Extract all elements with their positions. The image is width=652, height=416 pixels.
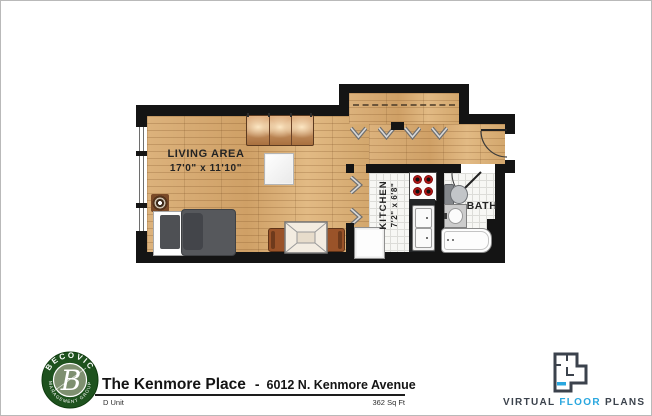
logo-monogram: B — [60, 364, 82, 397]
kitchen-label: KITCHEN 7'2" x 6'8" — [379, 170, 401, 240]
hanger-icon — [350, 126, 367, 140]
sink-basin — [415, 208, 432, 228]
sink-basin — [415, 228, 432, 248]
vfp-word-virtual: VIRTUAL — [503, 397, 555, 408]
burner-icon — [413, 187, 422, 196]
title-underline — [95, 394, 405, 396]
hanger-icon — [404, 126, 421, 140]
dining-chair-right — [326, 228, 345, 252]
stove-cooktop — [409, 172, 437, 201]
faucet-icon — [444, 213, 447, 219]
window — [136, 127, 147, 231]
tub-faucet-dot — [447, 239, 449, 241]
wall-nook-left — [346, 223, 354, 263]
kitchen-name: KITCHEN — [379, 170, 390, 240]
window-divider — [136, 151, 147, 156]
wall-alcove-top — [339, 84, 469, 93]
vfp-logo-text: VIRTUAL FLOOR PLANS — [503, 397, 639, 408]
living-area-dims: 17'0" x 11'10" — [150, 163, 262, 175]
floor-plan: LIVING AREA 17'0" x 11'10" KITCHEN 7'2" … — [136, 84, 517, 264]
window-divider — [136, 203, 147, 208]
closet-rod — [353, 104, 455, 106]
chair-back — [338, 231, 342, 249]
sink-drain — [426, 237, 428, 239]
kitchen-dims: 7'2" x 6'8" — [390, 170, 399, 240]
sink-drain — [426, 217, 428, 219]
coffee-table — [264, 153, 294, 185]
wall-living-top — [136, 105, 349, 116]
title-separator: - — [255, 376, 260, 392]
burner-icon — [424, 187, 433, 196]
bath-label: BATH — [458, 200, 506, 212]
sofa-post — [290, 113, 292, 117]
sofa-cushion-divider — [291, 116, 292, 145]
entry-door-arc — [479, 128, 509, 160]
hanger-icon — [349, 176, 363, 194]
sofa-post — [268, 113, 270, 117]
dining-table — [284, 221, 328, 254]
bathtub — [441, 228, 492, 253]
burner-icon — [413, 175, 422, 184]
wall-entry-right-lower — [505, 160, 515, 173]
speaker-icon — [151, 194, 169, 212]
area-label: 362 Sq Ft — [351, 398, 405, 407]
unit-label: D Unit — [103, 398, 124, 407]
hanger-icon — [431, 126, 448, 140]
wall-left-lower — [136, 229, 147, 263]
window-pane-line — [143, 127, 144, 231]
vfp-blue-accent — [557, 382, 566, 386]
vfp-logo-icon — [547, 351, 592, 394]
closet-alcove-floor — [349, 93, 459, 124]
sofa-post — [247, 113, 249, 117]
wall-nook-stub — [346, 164, 354, 173]
living-area-label: LIVING AREA 17'0" x 11'10" — [150, 148, 262, 174]
sofa — [246, 115, 314, 146]
tub-drain-dot — [452, 239, 454, 241]
living-area-name: LIVING AREA — [150, 148, 262, 161]
vfp-word-floor: FLOOR — [559, 397, 601, 408]
becovic-logo: BECOVIC MANAGEMENT GROUP B — [41, 350, 99, 410]
vfp-word-plans: PLANS — [605, 397, 645, 408]
window-pane-line — [139, 127, 140, 231]
burner-icon — [424, 175, 433, 184]
kitchen-sink — [412, 205, 435, 251]
property-name: The Kenmore Place — [102, 376, 246, 394]
sofa-cushion-divider — [269, 116, 270, 145]
bed-headboard-panel — [160, 215, 180, 249]
sofa-post — [310, 113, 312, 117]
wall-left-upper — [136, 105, 147, 129]
chair-back — [271, 231, 275, 249]
footer-title-row: The Kenmore Place - 6012 N. Kenmore Aven… — [102, 376, 416, 394]
bed-pillow — [183, 213, 203, 250]
closet-wall-stub — [391, 122, 404, 130]
floor-plan-page: LIVING AREA 17'0" x 11'10" KITCHEN 7'2" … — [0, 0, 652, 416]
property-address: 6012 N. Kenmore Avenue — [267, 378, 416, 392]
tub-rim — [444, 231, 489, 250]
